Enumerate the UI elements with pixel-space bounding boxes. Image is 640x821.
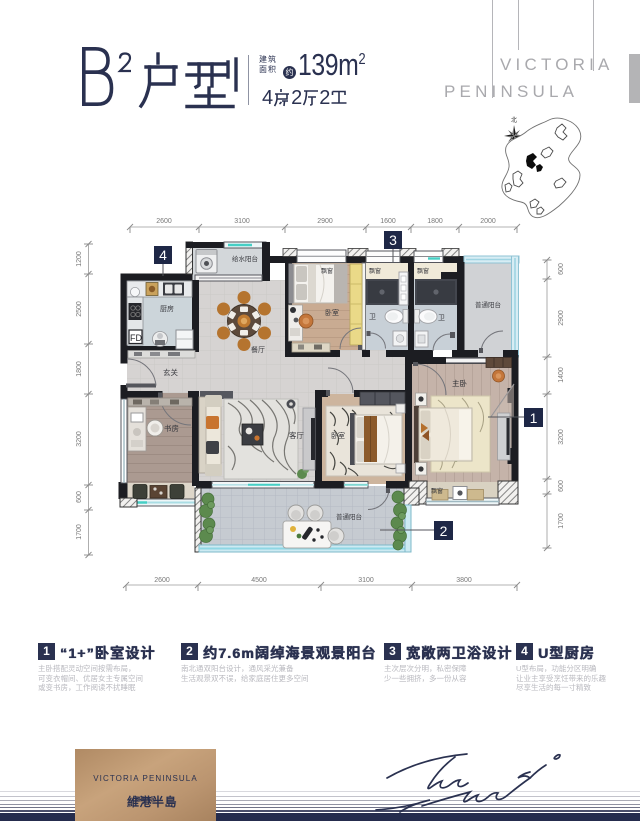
svg-text:600: 600 [558, 480, 565, 492]
svg-text:书房: 书房 [164, 423, 179, 433]
svg-text:餐厅: 餐厅 [251, 345, 265, 354]
svg-text:普通阳台: 普通阳台 [475, 300, 501, 309]
svg-text:2: 2 [440, 523, 448, 539]
svg-text:客厅: 客厅 [289, 430, 304, 440]
svg-text:卫: 卫 [438, 314, 445, 322]
svg-text:飘窗: 飘窗 [417, 267, 429, 275]
svg-text:FD: FD [130, 333, 142, 343]
svg-text:3100: 3100 [358, 577, 374, 584]
svg-text:卧室: 卧室 [325, 308, 339, 317]
svg-text:飘窗: 飘窗 [369, 267, 381, 275]
svg-text:2900: 2900 [317, 218, 333, 225]
svg-text:2000: 2000 [480, 218, 496, 225]
svg-text:4: 4 [159, 247, 167, 263]
svg-text:2600: 2600 [154, 577, 170, 584]
svg-text:3200: 3200 [558, 429, 565, 445]
svg-text:1200: 1200 [76, 251, 83, 267]
svg-text:1400: 1400 [558, 367, 565, 383]
svg-text:1600: 1600 [380, 218, 396, 225]
svg-text:卫: 卫 [369, 313, 376, 321]
svg-text:3100: 3100 [234, 218, 250, 225]
svg-text:1700: 1700 [76, 524, 83, 540]
svg-text:1800: 1800 [76, 361, 83, 377]
svg-text:1800: 1800 [427, 218, 443, 225]
svg-text:2600: 2600 [156, 218, 172, 225]
svg-text:主卧: 主卧 [452, 378, 467, 388]
svg-text:600: 600 [558, 263, 565, 275]
svg-text:3: 3 [389, 232, 397, 248]
svg-text:3200: 3200 [76, 431, 83, 447]
svg-text:给水阳台: 给水阳台 [232, 254, 258, 263]
svg-text:飘窗: 飘窗 [431, 487, 443, 495]
svg-text:1: 1 [530, 410, 538, 426]
svg-text:玄关: 玄关 [163, 367, 178, 377]
svg-text:4500: 4500 [251, 577, 267, 584]
svg-text:2900: 2900 [558, 310, 565, 326]
svg-text:卧室: 卧室 [331, 431, 345, 440]
svg-text:2500: 2500 [76, 301, 83, 317]
svg-text:飘窗: 飘窗 [321, 267, 333, 275]
svg-text:1700: 1700 [558, 513, 565, 529]
svg-text:普通阳台: 普通阳台 [336, 512, 362, 521]
svg-text:3800: 3800 [456, 577, 472, 584]
svg-text:厨房: 厨房 [160, 304, 174, 313]
svg-text:北: 北 [511, 116, 517, 124]
svg-text:600: 600 [76, 491, 83, 503]
